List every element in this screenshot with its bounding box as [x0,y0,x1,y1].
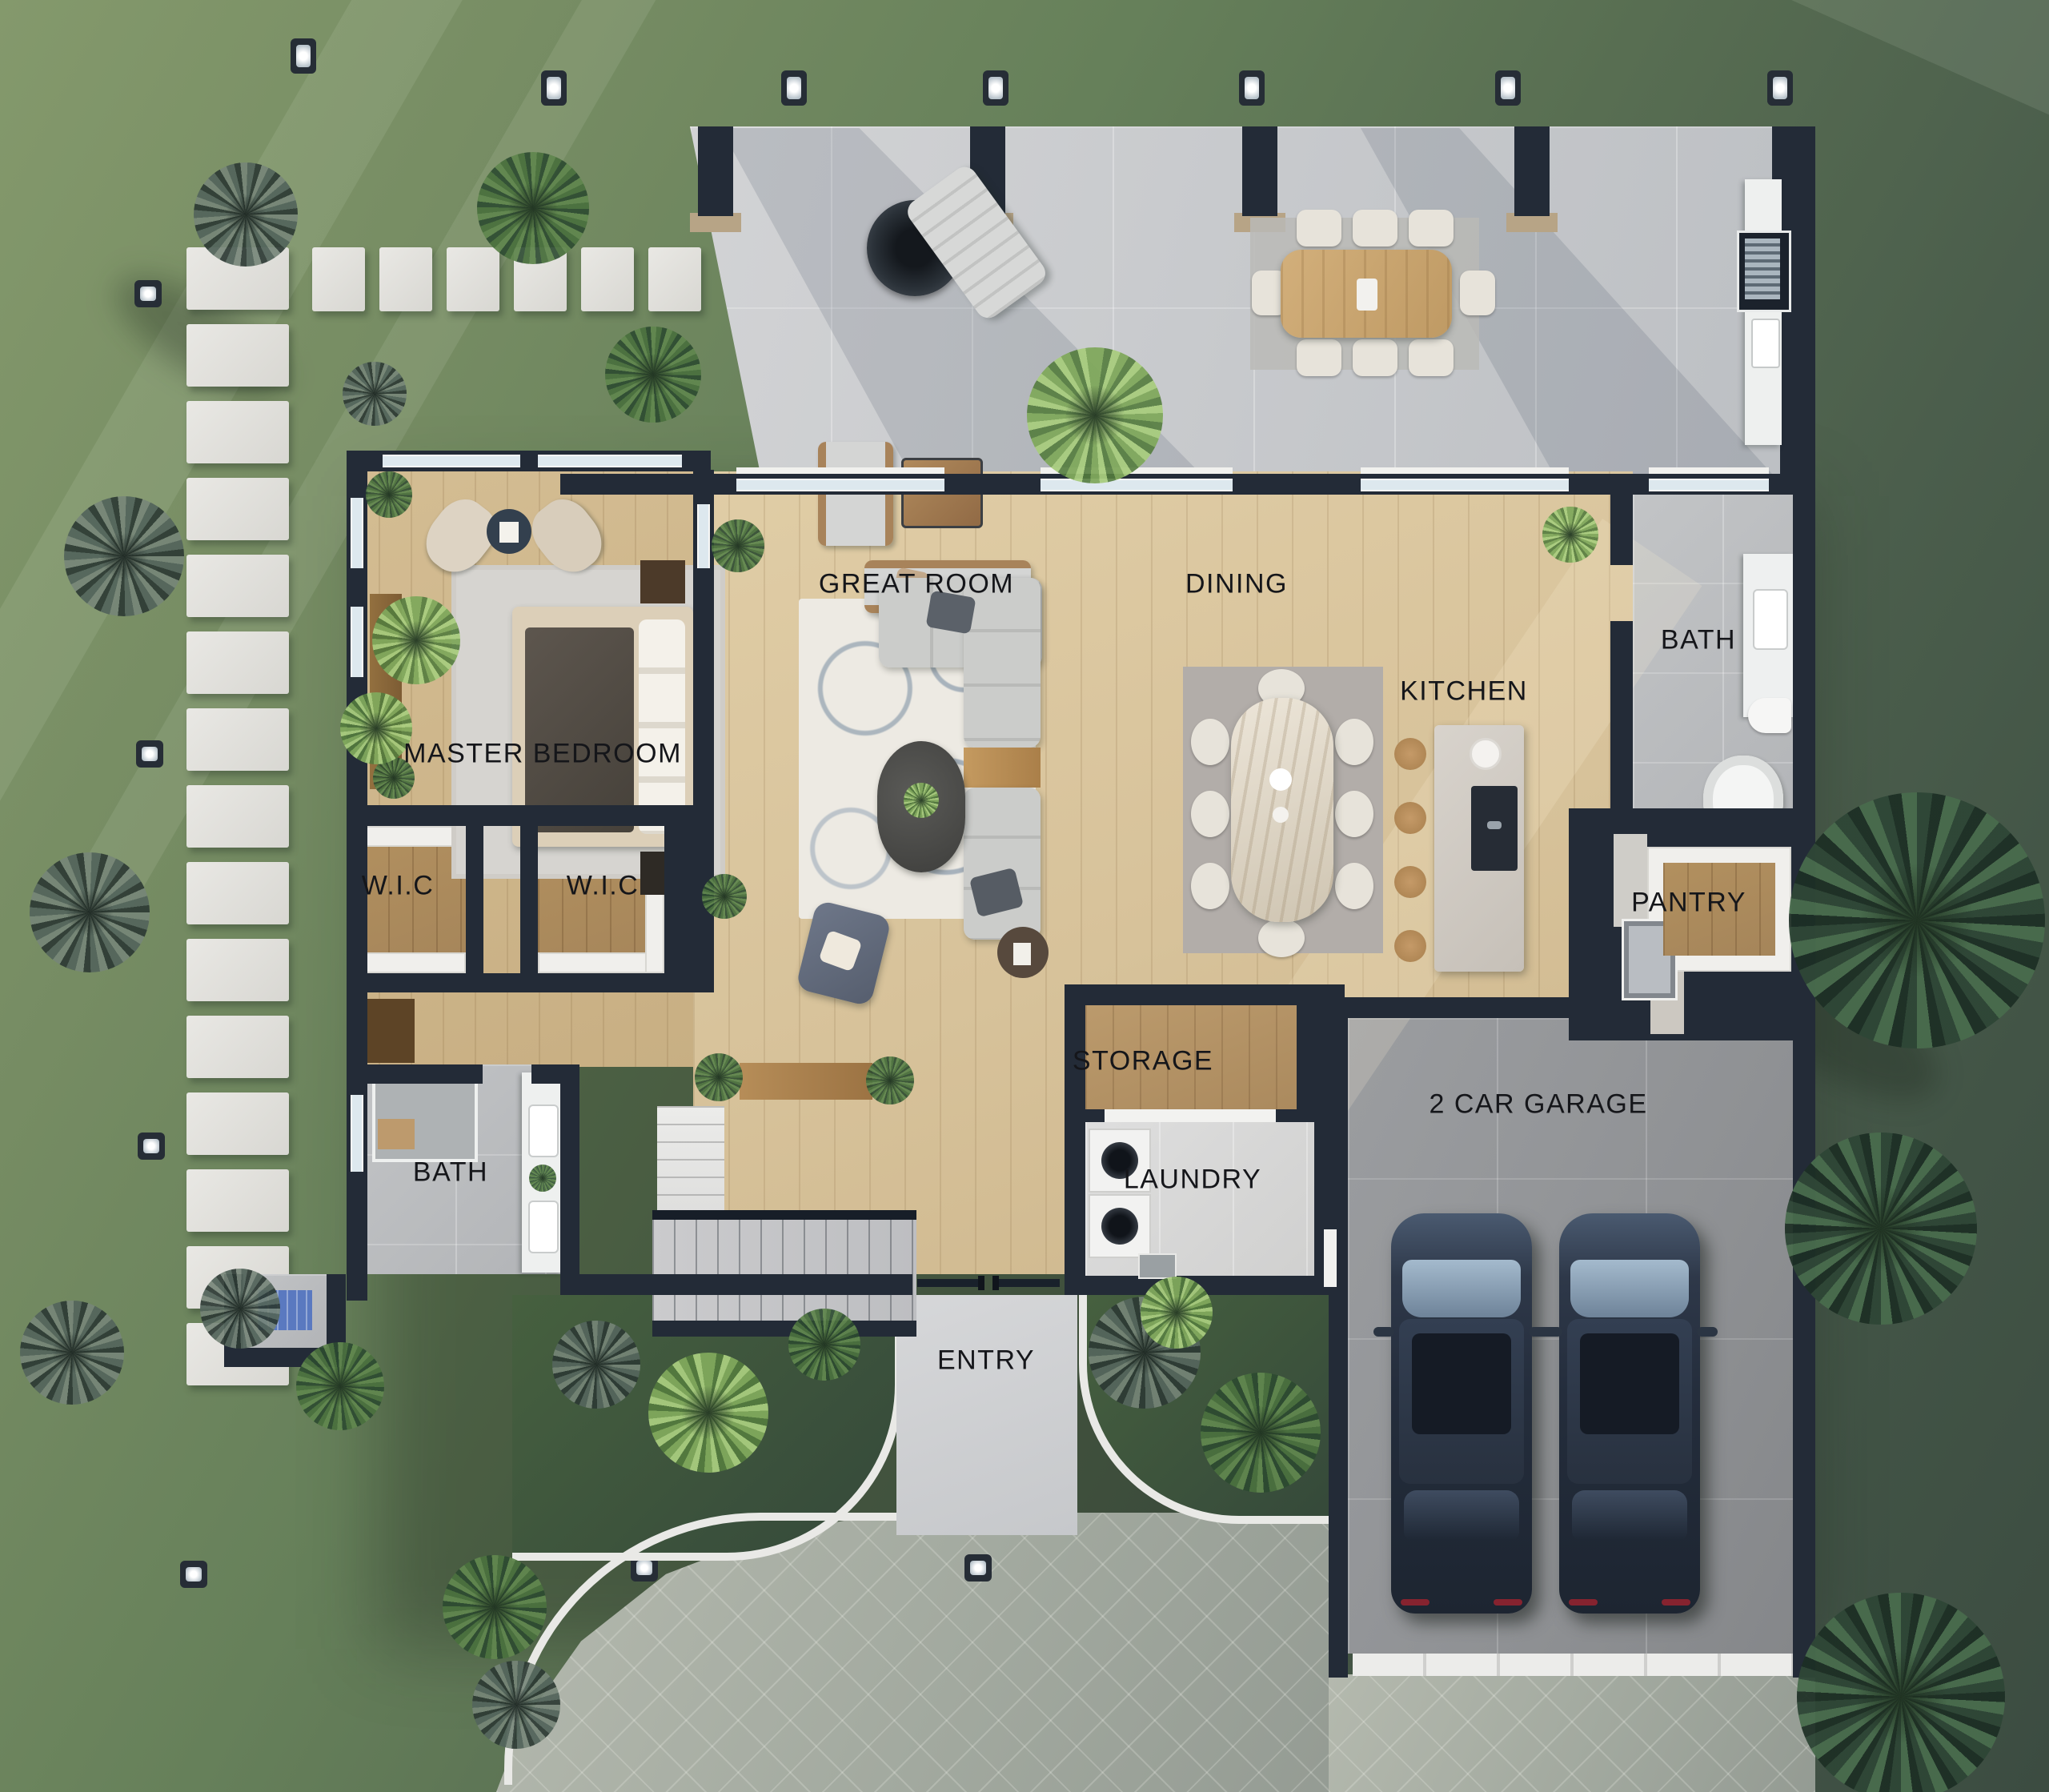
bath-right-wall [560,1064,579,1295]
car-windshield [1570,1260,1689,1317]
path-light [138,1133,165,1160]
palm-plant [648,1353,768,1473]
sunlight-streak [1559,0,2049,124]
stair-base-wall [652,1321,916,1337]
garage-top-wall [1329,997,1815,1018]
bath-sink [528,1201,559,1253]
window-sill [736,467,944,474]
open-book [499,522,519,543]
laundry-garage-door [1324,1229,1337,1287]
bath-window [351,1095,363,1172]
stepping-stone [186,1016,289,1078]
car-mirror [1542,1327,1562,1337]
agave-plant [194,162,298,267]
stepping-stone [581,247,634,311]
dining-chair [1258,919,1305,957]
garage-door [1353,1654,1793,1676]
table-dishes [1269,768,1292,791]
sliding-glass-door [736,479,944,491]
sliding-glass-door [1041,479,1233,491]
palm-plant [296,1342,384,1430]
stepping-stone [186,478,289,540]
palm-plant [372,596,460,684]
closet-divider-wall [520,805,538,992]
entry-plant [866,1056,914,1104]
kitchen-plant [1542,507,1598,563]
patio-column [1242,126,1277,216]
agave-plant [200,1269,280,1349]
stepping-stone [186,785,289,848]
bedroom-window [351,498,363,568]
outdoor-dining-chair [1409,339,1454,376]
car [1559,1213,1700,1614]
entry-plant [695,1053,743,1101]
label-master-bedroom: MASTER BEDROOM [403,739,682,770]
stepping-stone [186,631,289,694]
bedroom-window [383,455,520,467]
stepping-stone [186,1092,289,1155]
bath-top-wall [347,1064,483,1084]
label-wic-left: W.I.C [362,871,435,902]
car [1391,1213,1532,1614]
floor-plan-render: GREAT ROOM DINING KITCHEN BATH MASTER BE… [0,0,2049,1792]
sectional-sofa-right [964,788,1041,940]
stepping-stone [186,862,289,924]
palm-plant [340,692,412,764]
bar-stool [1394,866,1426,898]
indoor-plant [712,519,764,572]
path-light [983,70,1008,106]
path-light [1495,70,1521,106]
book [1013,943,1031,965]
window-sill [1361,467,1569,474]
sink-faucet [1487,821,1502,829]
outdoor-dining-chair [1353,339,1397,376]
car-roof [1399,1319,1524,1484]
front-wall [560,1274,912,1295]
entry-walkway [896,1295,1077,1535]
car-sunroof [1412,1333,1511,1434]
garage-right-wall [1793,997,1815,1678]
bath-sink [528,1104,559,1157]
path-light [964,1554,992,1582]
path-light [1239,70,1265,106]
bedroom-window [538,455,682,467]
dryer [1089,1194,1151,1258]
window [1649,479,1769,491]
bar-stool [1394,738,1426,770]
potted-plant [366,471,412,518]
path-light [180,1561,207,1588]
bar-stool [1394,802,1426,834]
table-plant [904,783,939,818]
car-roof [1567,1319,1692,1484]
outdoor-dining-chair [1297,210,1341,247]
path-light [781,70,807,106]
car-rear-window [1572,1490,1687,1540]
label-laundry: LAUNDRY [1124,1165,1261,1196]
label-pantry: PANTRY [1631,888,1746,919]
dining-chair [1191,719,1229,765]
stepping-stone [447,247,499,311]
car-taillight [1569,1599,1598,1606]
patio-column [1514,126,1550,216]
closet-shelving [364,952,466,973]
outdoor-dining-chair [1460,271,1495,315]
car-taillight [1401,1599,1429,1606]
dining-table [1231,698,1333,922]
bed-pillows [639,619,685,834]
kitchen-bath-wall [1610,493,1633,565]
dining-chair [1191,863,1229,909]
bar-stool [1394,930,1426,962]
path-light [291,38,316,74]
bed-duvet [525,627,634,832]
car-mirror [1373,1327,1394,1337]
palm-plant [1201,1373,1321,1493]
patio-column [698,126,733,216]
stepping-stone [312,247,365,311]
garage-left-wall [1329,997,1348,1678]
closet-shelving [364,826,466,847]
bedroom-door [697,504,710,568]
car-sunroof [1580,1333,1679,1434]
path-light [1767,70,1793,106]
bath-sink [1753,589,1788,650]
paver-driveway [1329,1674,1815,1792]
sofa-console-table [964,748,1041,788]
large-palm-tree [1797,1593,2005,1792]
path-light [136,740,163,768]
agave-plant [30,852,150,972]
stepping-stone [186,1169,289,1232]
table-centerpiece [1357,279,1377,311]
palm-plant [1141,1277,1213,1349]
outdoor-dining-chair [1353,210,1397,247]
stepping-stone [648,247,701,311]
stepping-stone [186,555,289,617]
label-dining: DINING [1185,569,1288,600]
nightstand [640,560,685,603]
closet-divider-wall [466,805,483,992]
dining-chair [1335,863,1373,909]
entry-console [740,1063,872,1100]
palm-plant [605,327,701,423]
car-rear-window [1404,1490,1519,1540]
large-palm-tree [1785,1133,1977,1325]
stepping-stone [379,247,432,311]
agave-plant [552,1321,640,1409]
dining-chair [1191,791,1229,837]
serving-plate [1470,738,1502,770]
bedroom-window [351,607,363,677]
label-wic-right: W.I.C [567,871,640,902]
vanity-plant [529,1165,556,1192]
stair-railing [652,1210,916,1220]
palm-plant [477,152,589,264]
storage-sliding-door [1105,1109,1276,1122]
car-taillight [1494,1599,1522,1606]
car-taillight [1662,1599,1690,1606]
stepping-stone [186,708,289,771]
palm-plant [788,1309,860,1381]
dining-chair [1335,719,1373,765]
stepping-stone [186,939,289,1001]
laundry-sink [1138,1253,1177,1279]
car-mirror [1697,1327,1718,1337]
entry-door-leaf [992,1279,1060,1287]
stair-upper-flight [657,1106,724,1213]
window-sill [1649,467,1769,474]
label-kitchen: KITCHEN [1400,676,1528,708]
indoor-plant [702,874,747,919]
agave-plant [20,1301,124,1405]
stepping-stone [186,401,289,463]
label-garage: 2 CAR GARAGE [1429,1089,1647,1121]
entry-door-handles [978,1276,984,1290]
label-storage: STORAGE [1073,1046,1213,1077]
entry-door-leaf [917,1279,984,1287]
path-light [134,280,162,307]
sliding-glass-door [1361,479,1569,491]
agave-plant [472,1661,560,1749]
grill-grates [1745,239,1780,299]
stepping-stone [186,324,289,387]
kitchen-bath-wall [1610,621,1633,853]
dining-chair [1335,791,1373,837]
agave-plant [64,496,184,616]
outdoor-dining-chair [1409,210,1454,247]
closet-bottom-wall [347,973,714,992]
label-great-room: GREAT ROOM [819,569,1014,600]
label-bath-upper: BATH [1661,625,1736,656]
agave-plant [343,362,407,426]
staircase [652,1220,916,1322]
outdoor-dining-chair [1297,339,1341,376]
toilet [1748,698,1791,733]
label-entry: ENTRY [937,1345,1035,1377]
outdoor-kitchen-counter [1745,179,1782,445]
path-light [541,70,567,106]
car-windshield [1402,1260,1521,1317]
shower-bench [378,1119,415,1149]
label-bath-lower: BATH [413,1157,488,1189]
palm-plant [443,1555,547,1659]
large-palm-tree [1789,792,2045,1048]
outdoor-sink [1751,319,1780,368]
fan-palm [1027,347,1163,483]
